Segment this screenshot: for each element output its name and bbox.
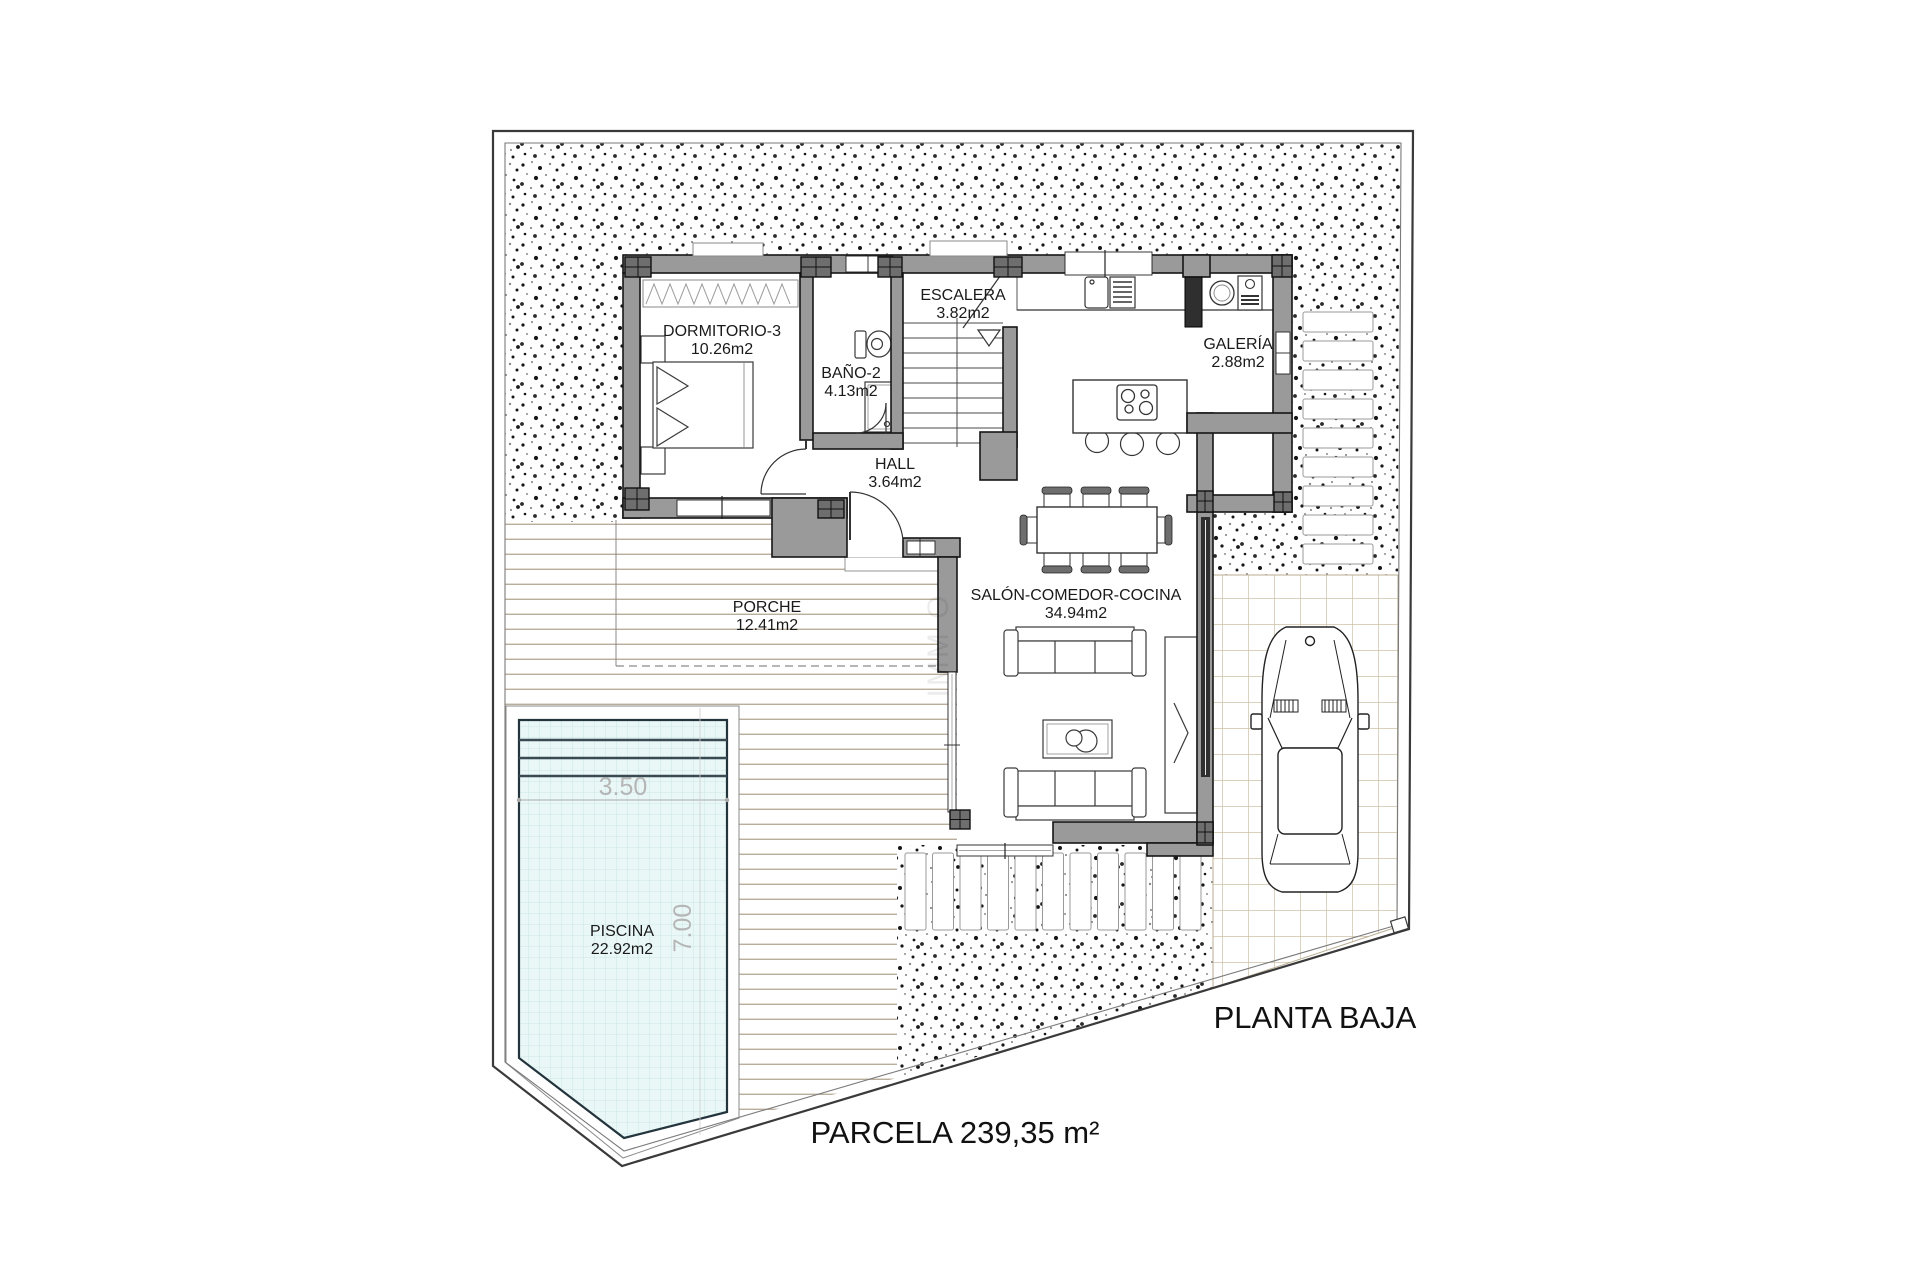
room-label-porche: PORCHE <box>733 599 801 616</box>
room-area-salon: 34.94m2 <box>1045 605 1107 622</box>
room-label-dormitorio: DORMITORIO-3 <box>663 323 781 340</box>
hob-icon <box>1117 385 1157 420</box>
pool-length-dim: 7.00 <box>669 904 697 953</box>
room-label-escalera: ESCALERA <box>920 287 1006 304</box>
room-area-galeria: 2.88m2 <box>1211 354 1264 371</box>
plan-title: PLANTA BAJA <box>1214 1000 1417 1035</box>
room-area-dormitorio: 10.26m2 <box>691 341 753 358</box>
fridge-icon <box>1185 277 1202 327</box>
tv-unit-icon <box>1165 637 1197 813</box>
utility-sink-icon <box>1238 276 1262 310</box>
toilet-icon <box>855 331 891 358</box>
room-area-hall: 3.64m2 <box>868 474 921 491</box>
stepping-stones-bottom <box>905 853 1201 930</box>
floor-plan-drawing: DORMITORIO-3 10.26m2 BAÑO-2 4.13m2 ESCAL… <box>0 0 1920 1280</box>
room-area-escalera: 3.82m2 <box>936 305 989 322</box>
kitchen-counter <box>1017 273 1273 310</box>
nightstand-icon <box>641 447 665 474</box>
room-label-salon: SALÓN-COMEDOR-COCINA <box>971 585 1182 604</box>
sofa-icon <box>1004 627 1146 676</box>
room-label-hall: HALL <box>875 456 915 473</box>
sofa-icon <box>1004 768 1146 820</box>
wardrobe-icon <box>643 280 798 307</box>
room-label-bano: BAÑO-2 <box>821 362 881 382</box>
dining-table <box>1037 507 1157 553</box>
bed-icon <box>653 362 753 448</box>
room-label-galeria: GALERÍA <box>1203 334 1273 353</box>
car-icon <box>1251 627 1369 892</box>
room-area-porche: 12.41m2 <box>736 617 798 634</box>
floor-plan-page: DORMITORIO-3 10.26m2 BAÑO-2 4.13m2 ESCAL… <box>0 0 1920 1280</box>
coffee-table-icon <box>1043 720 1112 758</box>
nightstand-icon <box>641 336 665 363</box>
kitchen-sink-icon <box>1085 277 1108 308</box>
drainer-icon <box>1110 277 1135 308</box>
room-area-piscina: 22.92m2 <box>591 941 653 958</box>
room-label-piscina: PISCINA <box>590 923 654 940</box>
parcel-area-label: PARCELA 239,35 m² <box>811 1115 1100 1150</box>
watermark: IMM O <box>922 593 955 698</box>
stepping-stones-right <box>1303 312 1373 564</box>
pool-width-dim: 3.50 <box>599 773 648 801</box>
room-area-bano: 4.13m2 <box>824 383 877 400</box>
